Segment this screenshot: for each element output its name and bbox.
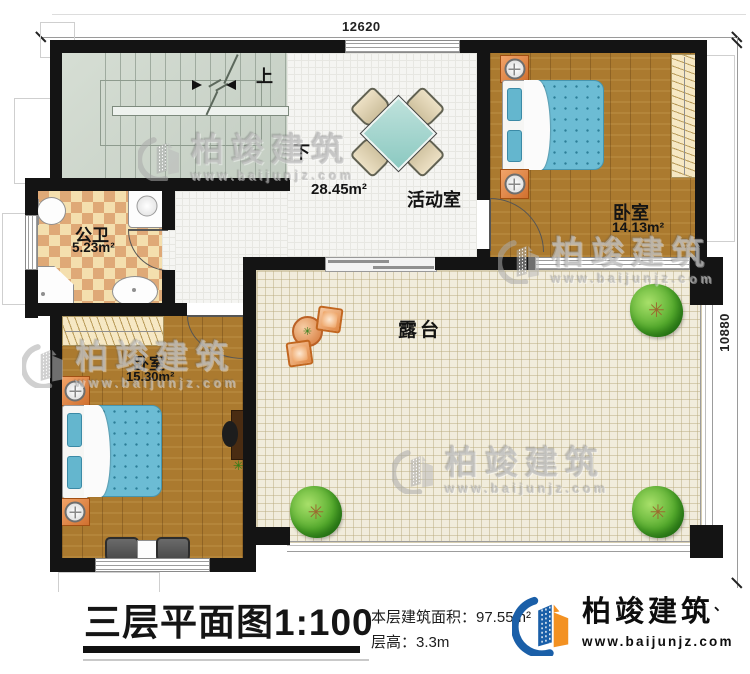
window [25,215,38,270]
tree-icon: ✳ [290,486,342,538]
stair-arrowhead-icon [192,80,202,90]
wall [243,527,290,545]
tree-icon: ✳ [632,486,684,538]
tree-icon: ✳ [630,284,683,337]
terrace-name-label: 露台 [398,315,442,342]
stair-handrail [112,106,289,116]
bedroom-bottom-door-leaf [187,315,243,317]
sink-drain [132,288,136,292]
patio-stool [285,339,313,367]
bedroom-top-door-leaf [489,198,491,251]
wardrobe [62,316,164,346]
lamp-icon [504,59,525,80]
plan-title: 三层平面图1:100 [84,592,374,646]
wall [50,303,62,570]
pillow [67,456,82,489]
title-underline [83,646,360,653]
bedroom-top-area-label: 14.13m² [612,219,664,235]
wall [50,558,95,572]
stair-arrowhead-icon [226,80,236,90]
brand-name: 柏竣建筑、 [582,594,734,632]
brand-tick: 、 [714,597,732,613]
wall [243,257,256,572]
sliding-door [325,257,437,272]
brand-logo: 柏竣建筑、 www.baijunjz.com [512,594,734,656]
wall [162,191,175,230]
terrace-railing-right [700,303,713,527]
stairs-down-label: 下 [293,138,310,163]
activity-area-label: 28.45m² [311,181,367,198]
wall [462,257,535,270]
pillow [507,130,522,163]
floor-height-label: 层高：3.3m [371,631,449,652]
stairs-up-label: 上 [256,62,273,87]
eave-outline [14,98,52,184]
wall [25,178,290,191]
extension-line-top [52,14,746,15]
brand-url: www.baijunjz.com [582,634,734,649]
bed [62,405,162,497]
window [345,40,460,53]
dimension-line-right [737,37,738,588]
nightstand [60,498,90,526]
activity-corridor-floor [175,191,287,257]
toilet-icon [37,197,66,225]
title-underline-thin [83,659,369,661]
wall [25,178,38,215]
window [535,257,690,270]
title-block: 三层平面图1:100 本层建筑面积：97.55m² 层高：3.3m 柏竣建筑、 … [0,592,750,674]
wardrobe [671,54,697,178]
wall [243,257,325,270]
wall [50,40,345,53]
lamp-icon [65,381,86,402]
desk-chair [222,421,238,447]
activity-corridor-floor [175,257,243,303]
wall [477,40,490,200]
patio-stool [315,305,343,333]
window [95,558,210,572]
nightstand [60,376,90,406]
bed-sheet [84,405,110,497]
bedroom-bottom-area-label: 15.30m² [126,369,174,384]
wall [50,40,62,183]
terrace-railing-bottom [287,541,690,552]
bed-sheet [524,80,550,170]
nightstand [500,55,529,83]
dimension-line-top [40,37,738,38]
activity-name-label: 活动室 [407,186,461,212]
terrace-column [690,525,723,558]
small-table [137,540,157,560]
dimension-top-label: 12620 [342,19,381,34]
bed [502,80,604,170]
floor-area-label: 本层建筑面积：97.55m² [371,606,531,627]
lamp-icon [504,174,525,195]
dimension-right-label: 10880 [717,313,732,352]
pillow [507,88,522,121]
brand-logo-icon [512,594,576,656]
pillow [67,413,82,446]
nightstand [500,169,529,199]
eave-outline [58,572,160,594]
wall [695,40,707,270]
bathroom-area-label: 5.23m² [72,240,115,255]
wall [460,40,707,53]
floor-plan-sheet: 12620 10880 [0,0,750,674]
lamp-icon [65,502,86,523]
shower-drain [41,292,45,296]
